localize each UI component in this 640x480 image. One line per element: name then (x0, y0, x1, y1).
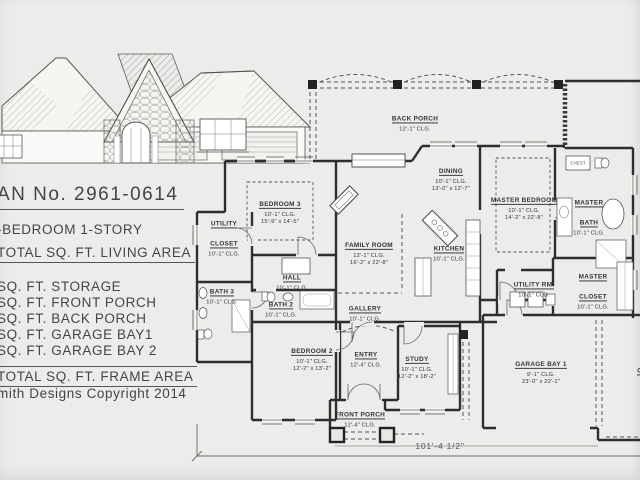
sqft-garage-bay2-line: SQ. FT. GARAGE BAY 2 (0, 343, 157, 358)
room-label-back-porch: BACK PORCH12'-1" CLG. (379, 106, 451, 133)
room-label-study: STUDY10'-1" CLG.12'-2" x 18'-2" (386, 347, 448, 381)
plan-type: -BEDROOM 1-STORY (0, 222, 143, 237)
overall-width-dimension: 101'-4 1/2" (415, 441, 464, 451)
room-label-hall: HALL10'-1" CLG. (272, 265, 312, 292)
frame-area-line: TOTAL SQ. FT. FRAME AREA (0, 366, 197, 387)
elevation-drawing (0, 54, 310, 163)
room-label-front-porch: FRONT PORCH12'-4" CLG. (331, 402, 389, 429)
sqft-front-porch-line: SQ. FT. FRONT PORCH (0, 295, 157, 310)
room-label-master-bedroom: MASTER BEDROOM10'-1" CLG.14'-2" x 22'-8" (483, 188, 565, 222)
room-label-utility-closet: UTILITY CLOSET10'-1" CLG. (203, 211, 245, 258)
sqft-storage-line: SQ. FT. STORAGE (0, 279, 121, 294)
room-label-family-room: FAMILY ROOM12'-1" CLG.16'-2" x 22'-8" (333, 233, 405, 267)
room-label-kitchen: KITCHEN10'-1" CLG. (426, 236, 472, 263)
room-label-bedroom-3: BEDROOM 310'-1" CLG.15'-9" x 14'-5" (244, 192, 316, 226)
architectural-drawing (0, 0, 640, 480)
copyright-line: mith Designs Copyright 2014 (0, 386, 187, 401)
room-label-bedroom-2: BEDROOM 210'-1" CLG.12'-2" x 13'-2" (276, 339, 348, 373)
room-label-dining: DINING10'-1" CLG.13'-0" x 12'-7" (420, 159, 482, 193)
sqft-back-porch-line: SQ. FT. BACK PORCH (0, 311, 147, 326)
room-label-bath-3: BATH 310'-1" CLG. (201, 279, 243, 306)
chest-label: CHEST (570, 161, 585, 166)
room-label-master-bath: MASTER BATH10'-1" CLG. (570, 190, 608, 237)
plan-number: AN No. 2961-0614 (0, 184, 184, 210)
room-label-gallery: GALLERY10'-1" CLG. (339, 296, 391, 323)
sqft-garage-bay1-line: SQ. FT. GARAGE BAY1 (0, 327, 153, 342)
living-area-line: TOTAL SQ. FT. LIVING AREA (0, 245, 195, 263)
plan-sheet: BACK PORCH12'-1" CLG. DINING10'-1" CLG.1… (0, 0, 640, 480)
room-label-garage-bay-1: GARAGE BAY 19'-1" CLG.23'-0" x 22'-1" (505, 352, 577, 386)
room-label-bath-2: BATH 210'-1" CLG. (260, 292, 302, 319)
room-label-master-closet: MASTER CLOSET10'-1" CLG. (573, 264, 613, 311)
room-label-utility-rm: UTILITY RM.10'-1" CLG. (510, 272, 558, 299)
room-label-entry: ENTRY12'-4" CLG. (343, 342, 389, 369)
room-label-garage-bay-2: GARAGE BAY 29'-1" CLG. (627, 358, 640, 385)
